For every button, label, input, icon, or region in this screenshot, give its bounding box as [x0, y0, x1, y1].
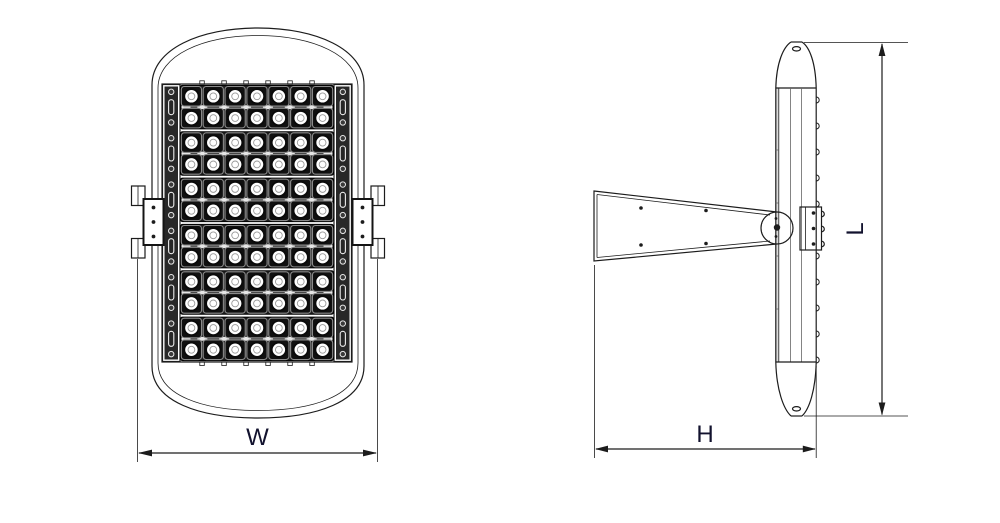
bottom-eyelet: [793, 407, 801, 411]
mount-arm-outline: [594, 191, 777, 261]
technical-drawing-canvas: W: [0, 0, 1000, 523]
side-view: H L: [594, 42, 908, 458]
dimension-label-h: H: [696, 421, 713, 448]
dimension-label-l: L: [842, 222, 869, 235]
mount-arm: [594, 191, 793, 261]
arm-mount-plate: [800, 207, 824, 250]
top-eyelet: [793, 47, 801, 51]
dimension-label-w: W: [246, 424, 269, 451]
pivot-bolt: [774, 224, 780, 230]
front-view: W: [132, 28, 385, 462]
